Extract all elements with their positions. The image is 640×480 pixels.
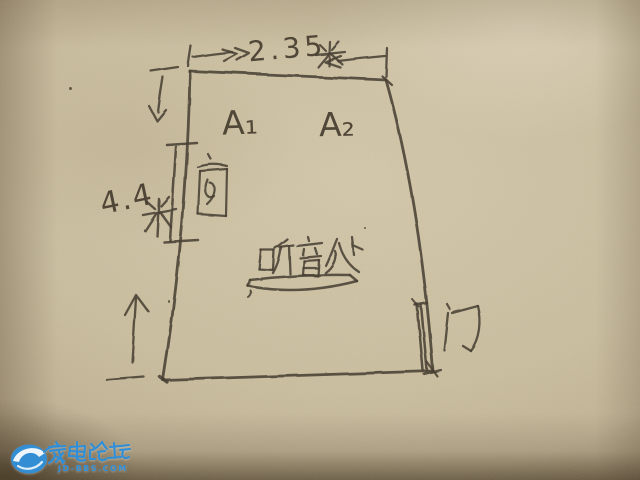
- speaker-a1-label: A₁: [221, 102, 258, 142]
- site-name-glyphs: [49, 442, 130, 463]
- width-dimension-value: 2.35: [247, 29, 328, 69]
- floor-plan-drawing: [0, 0, 640, 480]
- paper-speck: [168, 300, 170, 303]
- paper-speck: [69, 87, 72, 90]
- forum-watermark: JD-BBS.COM: [4, 436, 164, 480]
- site-url-text: JD-BBS.COM: [58, 464, 128, 473]
- forum-logo: [4, 436, 164, 480]
- paper-grain-texture: [0, 0, 640, 480]
- paper-speck: [364, 227, 366, 229]
- photo-canvas: 2.35 4.4 A₁ A₂: [0, 0, 640, 480]
- speaker-a2-label: A₂: [319, 105, 355, 145]
